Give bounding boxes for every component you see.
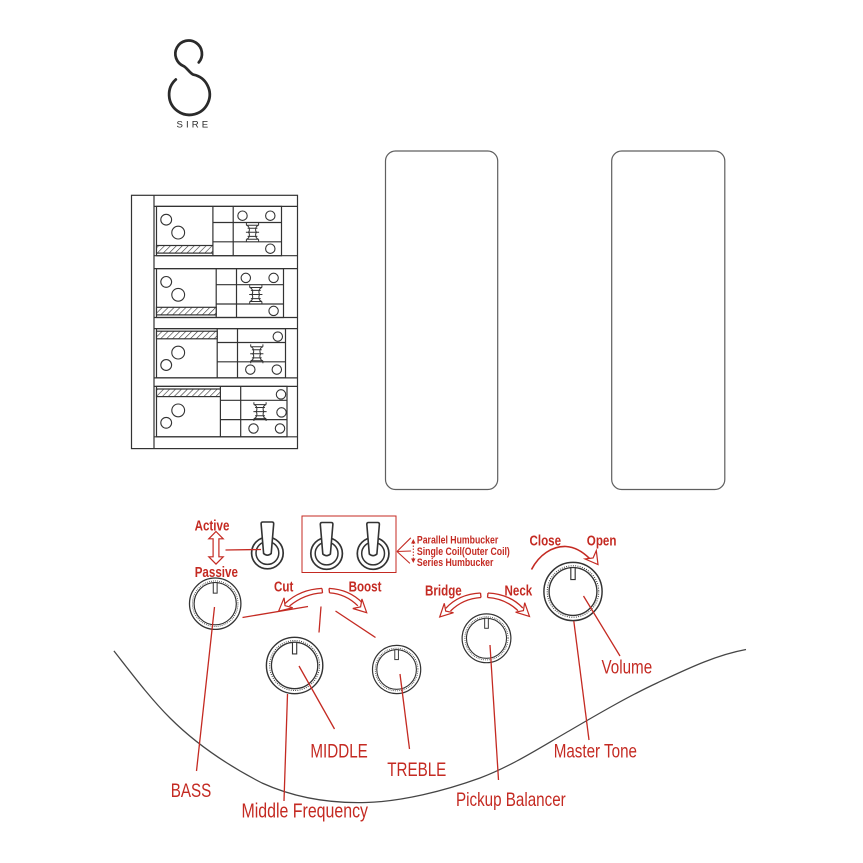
svg-text:Pickup Balancer: Pickup Balancer — [456, 788, 566, 810]
svg-text:Boost: Boost — [349, 578, 382, 595]
svg-text:Middle Frequency: Middle Frequency — [242, 800, 369, 822]
svg-text:Active: Active — [195, 517, 230, 534]
svg-text:Volume: Volume — [602, 656, 653, 678]
svg-text:SIRE: SIRE — [177, 120, 212, 131]
svg-text:Cut: Cut — [274, 578, 294, 595]
svg-text:Bridge: Bridge — [425, 582, 462, 599]
svg-text:MIDDLE: MIDDLE — [310, 740, 367, 762]
svg-text:Series Humbucker: Series Humbucker — [417, 557, 494, 569]
svg-text:BASS: BASS — [171, 779, 212, 801]
svg-text:Passive: Passive — [195, 564, 238, 581]
svg-text:Close: Close — [530, 532, 562, 549]
svg-text:Master Tone: Master Tone — [554, 740, 637, 762]
svg-text:TREBLE: TREBLE — [387, 758, 446, 780]
svg-text:Neck: Neck — [505, 582, 533, 599]
svg-text:Open: Open — [587, 532, 617, 549]
